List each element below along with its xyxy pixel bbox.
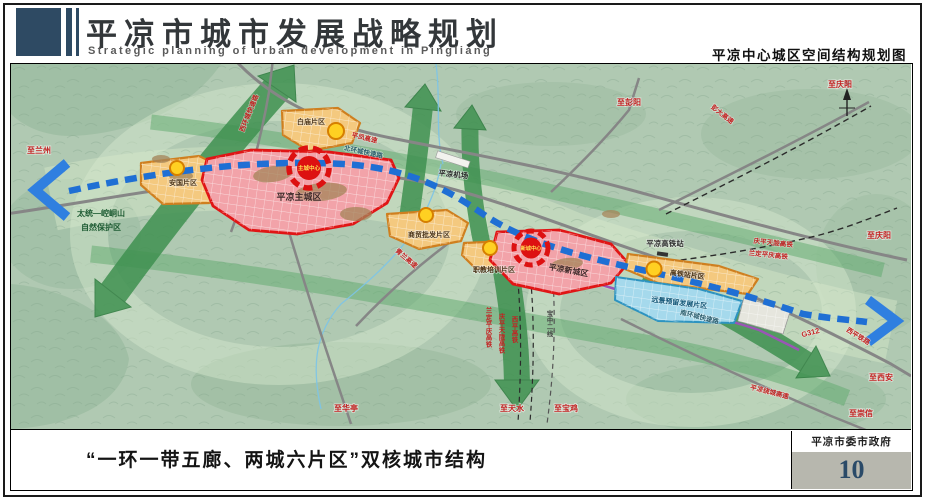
agency-name: 平凉市委市政府 [792,431,911,452]
new-center-label: 新城中心 [521,244,543,252]
page-number: 10 [792,452,911,490]
page-header: 平凉市城市发展战略规划 Strategic planning of urban … [0,0,925,63]
label-nature-reserve-1: 太统—崆峒山 [76,208,125,218]
logo-bar-thin [76,8,79,56]
label-ldpq-hsr-south: 兰定平庆高铁 [485,306,493,349]
label-district-anguo: 安国片区 [169,178,197,187]
label-to-huating: 至华亭 [334,403,358,413]
label-hsr-station: 平凉高铁站 [646,238,684,248]
label-to-qingyang-right: 至庆阳 [867,230,891,240]
map-title-caption: 平凉中心城区空间结构规划图 [712,44,907,64]
content-frame: 主城中心 新城中心 N 安国片区 白庙片区 平凉主城区 商贸批发片区 [10,63,913,491]
label-district-trade: 商贸批发片区 [408,230,450,239]
label-district-main-city: 平凉主城区 [276,191,321,202]
label-to-baoji: 至宝鸡 [554,403,578,413]
label-to-tianshui: 至天水 [500,403,525,413]
agency-box: 平凉市委市政府 10 [791,431,911,490]
label-nature-reserve-2: 自然保护区 [81,222,121,232]
label-baozhong-line2: 宝中二线 [546,309,553,338]
label-district-vocational: 职教培训片区 [473,265,515,274]
structure-caption: “一环一带五廊、两城六片区”双核城市结构 [86,445,487,472]
label-to-lanzhou: 至兰州 [27,145,51,155]
planning-map: 主城中心 新城中心 N 安国片区 白庙片区 平凉主城区 商贸批发片区 [11,64,911,430]
label-to-pengyang: 至彭阳 [617,97,641,107]
map-canvas: 主城中心 新城中心 N 安国片区 白庙片区 平凉主城区 商贸批发片区 [11,64,911,429]
logo-bar [66,8,72,56]
label-xiping-hsr: 西平高铁 [511,316,519,344]
footer: “一环一带五廊、两城六片区”双核城市结构 平凉市委市政府 10 [11,431,911,490]
label-qptl-hsr-south: 庆平天陇高铁 [498,312,506,355]
page-subtitle: Strategic planning of urban development … [88,45,492,57]
logo-square [16,8,61,56]
main-center-label: 主城中心 [298,164,321,172]
label-district-baimiao: 白庙片区 [297,117,325,126]
label-to-qingyang-top: 至庆阳 [828,79,852,89]
label-to-chongxin: 至崇信 [849,408,873,418]
label-to-xian: 至西安 [869,372,893,382]
